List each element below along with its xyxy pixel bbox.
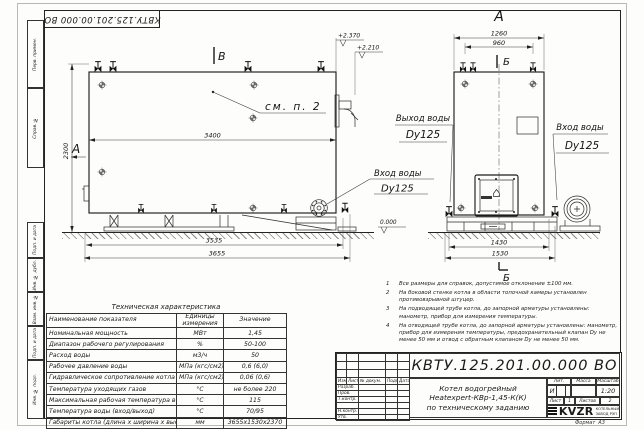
lit-value: И xyxy=(548,387,556,395)
frame-box-inv-podl: Инв. № подл. xyxy=(27,360,44,419)
kvzr-logo-text: KVZR xyxy=(559,405,594,418)
note-number: 2 xyxy=(384,290,399,304)
change-row xyxy=(337,370,410,378)
valve-icon xyxy=(530,63,536,72)
lifting-lug-icon xyxy=(531,204,540,213)
spec-cell: 115 xyxy=(224,395,287,406)
view-a-dimensions: 1260 960 Б 1430 1530 Б 0.000 Выход воды xyxy=(378,30,609,285)
sign-col-label: Лист xyxy=(347,378,359,385)
technical-drawing: 3400 2300 3535 3655 В А см. п. 2 + xyxy=(44,0,621,284)
front-inlet-size: Dy125 xyxy=(381,184,414,195)
elevation-2210: +2.210 xyxy=(357,45,379,52)
lifting-lug-icon xyxy=(457,204,466,213)
frame-box-label: Справ. № xyxy=(33,117,38,139)
section-a-mark: А xyxy=(71,142,80,156)
spec-row: Гидравлическое сопротивление котлаМПа (к… xyxy=(47,372,287,383)
inlet-flange xyxy=(311,200,328,217)
spec-section: Техническая характеристика Наименование … xyxy=(46,303,286,429)
scale-header: Масштаб xyxy=(596,378,620,385)
spec-row: Рабочее давление водыМПа (кгс/см2)0,6 (6… xyxy=(47,361,287,372)
front-inlet-label: Вход воды xyxy=(374,169,422,179)
sign-col-label: Изм. xyxy=(337,378,347,385)
mass-value-cell xyxy=(571,385,596,397)
lifting-lug-icon xyxy=(461,80,470,89)
inspection-hatch xyxy=(517,117,538,134)
lit-header: Лит. xyxy=(547,378,571,385)
spec-cell: Диапазон рабочего регулирования xyxy=(47,339,177,350)
spec-cell: °С xyxy=(177,406,224,417)
side-inlet-size: Dy125 xyxy=(565,140,600,152)
sign-row-label: Н.контр. xyxy=(337,408,359,414)
spec-row: Диапазон рабочего регулирования%50-100 xyxy=(47,339,287,350)
note-text: Все размеры для справок, допустимое откл… xyxy=(399,281,618,288)
sheet-label: Лист xyxy=(547,397,564,405)
furnace-door xyxy=(475,175,518,216)
spec-cell: 50-100 xyxy=(224,339,287,350)
dim-1430: 1430 xyxy=(491,239,508,247)
frame-box-sprav-no: Справ. № xyxy=(27,88,44,168)
company-logo-cell: KVZR КОТЕЛЬНЫЙ ЗАВОД РЭП xyxy=(547,405,620,418)
spec-cell: 0,06 (0,6) xyxy=(224,372,287,383)
format-value: А3 xyxy=(598,420,605,426)
change-row xyxy=(337,362,410,370)
lifting-lug-icon xyxy=(529,80,538,89)
lifting-lug-icon xyxy=(98,168,107,177)
frame-box-label: Подп. и дата xyxy=(33,328,38,358)
lit-value-cell: И xyxy=(547,385,571,397)
note-text: На подводящей трубе котла, до запорной а… xyxy=(399,306,618,320)
doc-number: КВТУ.125.201.00.000 ВО xyxy=(409,353,620,378)
spec-cell: 3655х1530х2370 xyxy=(224,417,287,428)
spec-row: Максимальная рабочая температура воды°С1… xyxy=(47,395,287,406)
elevation-zero: 0.000 xyxy=(380,220,397,226)
boiler-front-view xyxy=(82,62,358,231)
frame-box-label: Подп. и дата xyxy=(33,225,38,255)
spec-header-cell: Наименование показателя xyxy=(47,314,177,328)
frame-box-perv-primen: Перв. примен. xyxy=(27,20,44,88)
format-word: Формат xyxy=(575,420,595,426)
note-number: 4 xyxy=(384,323,399,344)
spec-cell: °С xyxy=(177,383,224,394)
valve-icon xyxy=(318,62,325,72)
lifting-lug-icon xyxy=(249,204,258,213)
sign-header-row: Изм. Лист № докум. Подп. Дата xyxy=(337,378,410,385)
spec-cell: Гидравлическое сопротивление котла xyxy=(47,372,177,383)
note-item: 1Все размеры для справок, допустимое отк… xyxy=(384,281,618,288)
dim-960: 960 xyxy=(493,39,505,47)
dim-1260: 1260 xyxy=(491,30,508,38)
inlet-valve-icon xyxy=(552,207,559,217)
change-row xyxy=(337,354,410,362)
company-name-line1: КОТЕЛЬНЫЙ xyxy=(596,407,620,411)
sign-grid: Изм. Лист № докум. Подп. Дата Разраб. Пр… xyxy=(336,353,410,421)
spec-cell: Номинальная мощность xyxy=(47,328,177,339)
description-line-1: Котел водогрейный xyxy=(427,384,530,394)
spec-cell: МПа (кгс/см2) xyxy=(177,372,224,383)
note-item: 2На боковой стенке котла в области топоч… xyxy=(384,290,618,304)
spec-cell: 1,45 xyxy=(224,328,287,339)
outlet-size: Dy125 xyxy=(406,129,441,141)
spec-cell: Температура уходящих газов xyxy=(47,383,177,394)
drain-valve-icon xyxy=(211,204,217,213)
view-b-mark: В xyxy=(218,50,226,63)
lifting-lug-icon xyxy=(249,114,258,123)
sheet-value: 1 xyxy=(564,397,575,405)
frame-box-label: Инв. № дубл. xyxy=(33,260,38,290)
spec-cell: Температура воды (вход/выход) xyxy=(47,406,177,417)
sign-col-label: № докум. xyxy=(359,378,386,385)
dim-2300: 2300 xyxy=(62,143,70,160)
spec-cell: 0,6 (6,0) xyxy=(224,361,287,372)
sheets-value: 2 xyxy=(600,397,620,405)
valve-icon xyxy=(110,62,117,72)
note-text: На боковой стенке котла в области топочн… xyxy=(399,290,618,304)
drain-valve-icon xyxy=(281,204,287,213)
spec-row: Габариты котла (длина х ширина х высота)… xyxy=(47,417,287,428)
notes-block: 1Все размеры для справок, допустимое отк… xyxy=(384,281,618,346)
valve-icon xyxy=(245,62,252,72)
drawing-sheet: Перв. примен. Справ. № Подп. и дата Инв.… xyxy=(0,0,644,430)
spec-header-cell: Значение xyxy=(224,314,287,328)
note-text: На отводящей трубе котла, до запорной ар… xyxy=(399,323,618,344)
dim-3655: 3655 xyxy=(209,250,226,258)
frame-box-podp-data-1: Подп. и дата xyxy=(27,222,44,258)
frame-box-inv-dubl: Инв. № дубл. xyxy=(27,258,44,292)
sign-row-label: Т.контр. xyxy=(337,397,359,403)
frame-box-label: Перв. примен. xyxy=(33,38,38,71)
note-item: 4На отводящей трубе котла, до запорной а… xyxy=(384,323,618,344)
spec-cell: м3/ч xyxy=(177,350,224,361)
top-stamp-box: КВТУ.125.201.00.000 ВО xyxy=(44,10,160,28)
top-stamp-doc-number: КВТУ.125.201.00.000 ВО xyxy=(44,14,161,24)
note-number: 3 xyxy=(384,306,399,320)
sign-col-label: Подп. xyxy=(386,378,398,385)
frame-box-label: Инв. № подл. xyxy=(33,374,38,405)
dim-3535: 3535 xyxy=(206,237,223,245)
spec-cell: Габариты котла (длина х ширина х высота) xyxy=(47,417,177,428)
scale-value-cell: 1:20 xyxy=(596,385,620,397)
frame-box-label: Взам. инв. № xyxy=(33,294,38,324)
spec-cell: МПа (кгс/см2) xyxy=(177,361,224,372)
outlet-label: Выход воды xyxy=(396,114,450,124)
outlet-valve-icon xyxy=(446,207,453,217)
lifting-lug-icon xyxy=(250,81,259,90)
boiler-body-outline xyxy=(89,72,336,213)
blower-fan xyxy=(560,196,600,231)
spec-cell: МВт xyxy=(177,328,224,339)
note-number: 1 xyxy=(384,281,399,288)
drain-valve-icon xyxy=(138,204,144,213)
frame-box-vzam-inv: Взам. инв. № xyxy=(27,292,44,326)
spec-header-row: Наименование показателя Единицы измерени… xyxy=(47,314,287,328)
spec-row: Номинальная мощностьМВт1,45 xyxy=(47,328,287,339)
spec-cell: °С xyxy=(177,395,224,406)
description-line-2: Heatexpert-КВр-1,45-К(К) xyxy=(427,393,530,403)
doc-description: Котел водогрейный Heatexpert-КВр-1,45-К(… xyxy=(409,378,547,418)
callout-note: см. п. 2 xyxy=(265,101,322,113)
dim-3400: 3400 xyxy=(204,132,221,140)
title-block: Изм. Лист № докум. Подп. Дата Разраб. Пр… xyxy=(335,352,622,420)
base-frame xyxy=(447,217,557,231)
mass-header: Масса xyxy=(571,378,596,385)
valve-icon xyxy=(95,62,102,72)
lifting-lug-icon xyxy=(98,81,107,90)
support-skid xyxy=(104,215,356,231)
left-pipe-stub xyxy=(82,186,89,201)
view-a-title: А xyxy=(493,9,504,25)
spec-row: Температура воды (вход/выход)°С70/95 xyxy=(47,406,287,417)
right-burner-fixture xyxy=(335,95,358,127)
frame-box-podp-data-2: Подп. и дата xyxy=(27,326,44,360)
spec-cell: % xyxy=(177,339,224,350)
valve-icon xyxy=(470,63,476,72)
elevation-2370: +2.370 xyxy=(338,33,360,40)
sign-row-label: Утв. xyxy=(337,414,359,420)
spec-cell: мм xyxy=(177,417,224,428)
side-valve-icon xyxy=(342,203,348,213)
sign-row: Утв. xyxy=(337,414,410,420)
boiler-view-a: А xyxy=(446,9,600,231)
spec-cell: 50 xyxy=(224,350,287,361)
valve-icon xyxy=(460,63,466,72)
sheets-label: Листов xyxy=(575,397,600,405)
description-line-3: по техническому заданию xyxy=(427,403,530,413)
spec-row: Расход водым3/ч50 xyxy=(47,350,287,361)
dim-1530: 1530 xyxy=(492,250,509,258)
spec-row: Температура уходящих газов°Сне более 220 xyxy=(47,383,287,394)
spec-cell: не более 220 xyxy=(224,383,287,394)
spec-table: Наименование показателя Единицы измерени… xyxy=(46,313,287,429)
section-b-top-mark: Б xyxy=(503,57,510,68)
format-label: Формат А3 xyxy=(575,420,605,426)
spec-cell: Рабочее давление воды xyxy=(47,361,177,372)
spec-cell: Максимальная рабочая температура воды xyxy=(47,395,177,406)
spec-table-title: Техническая характеристика xyxy=(46,303,286,311)
sign-col-label: Дата xyxy=(398,378,410,385)
note-item: 3На подводящей трубе котла, до запорной … xyxy=(384,306,618,320)
side-inlet-label: Вход воды xyxy=(556,123,604,133)
spec-cell: 70/95 xyxy=(224,406,287,417)
spec-header-cell: Единицы измерения xyxy=(177,314,224,328)
spec-cell: Расход воды xyxy=(47,350,177,361)
company-name-line2: ЗАВОД РЭП xyxy=(596,412,620,416)
kvzr-logo-icon xyxy=(548,407,557,416)
